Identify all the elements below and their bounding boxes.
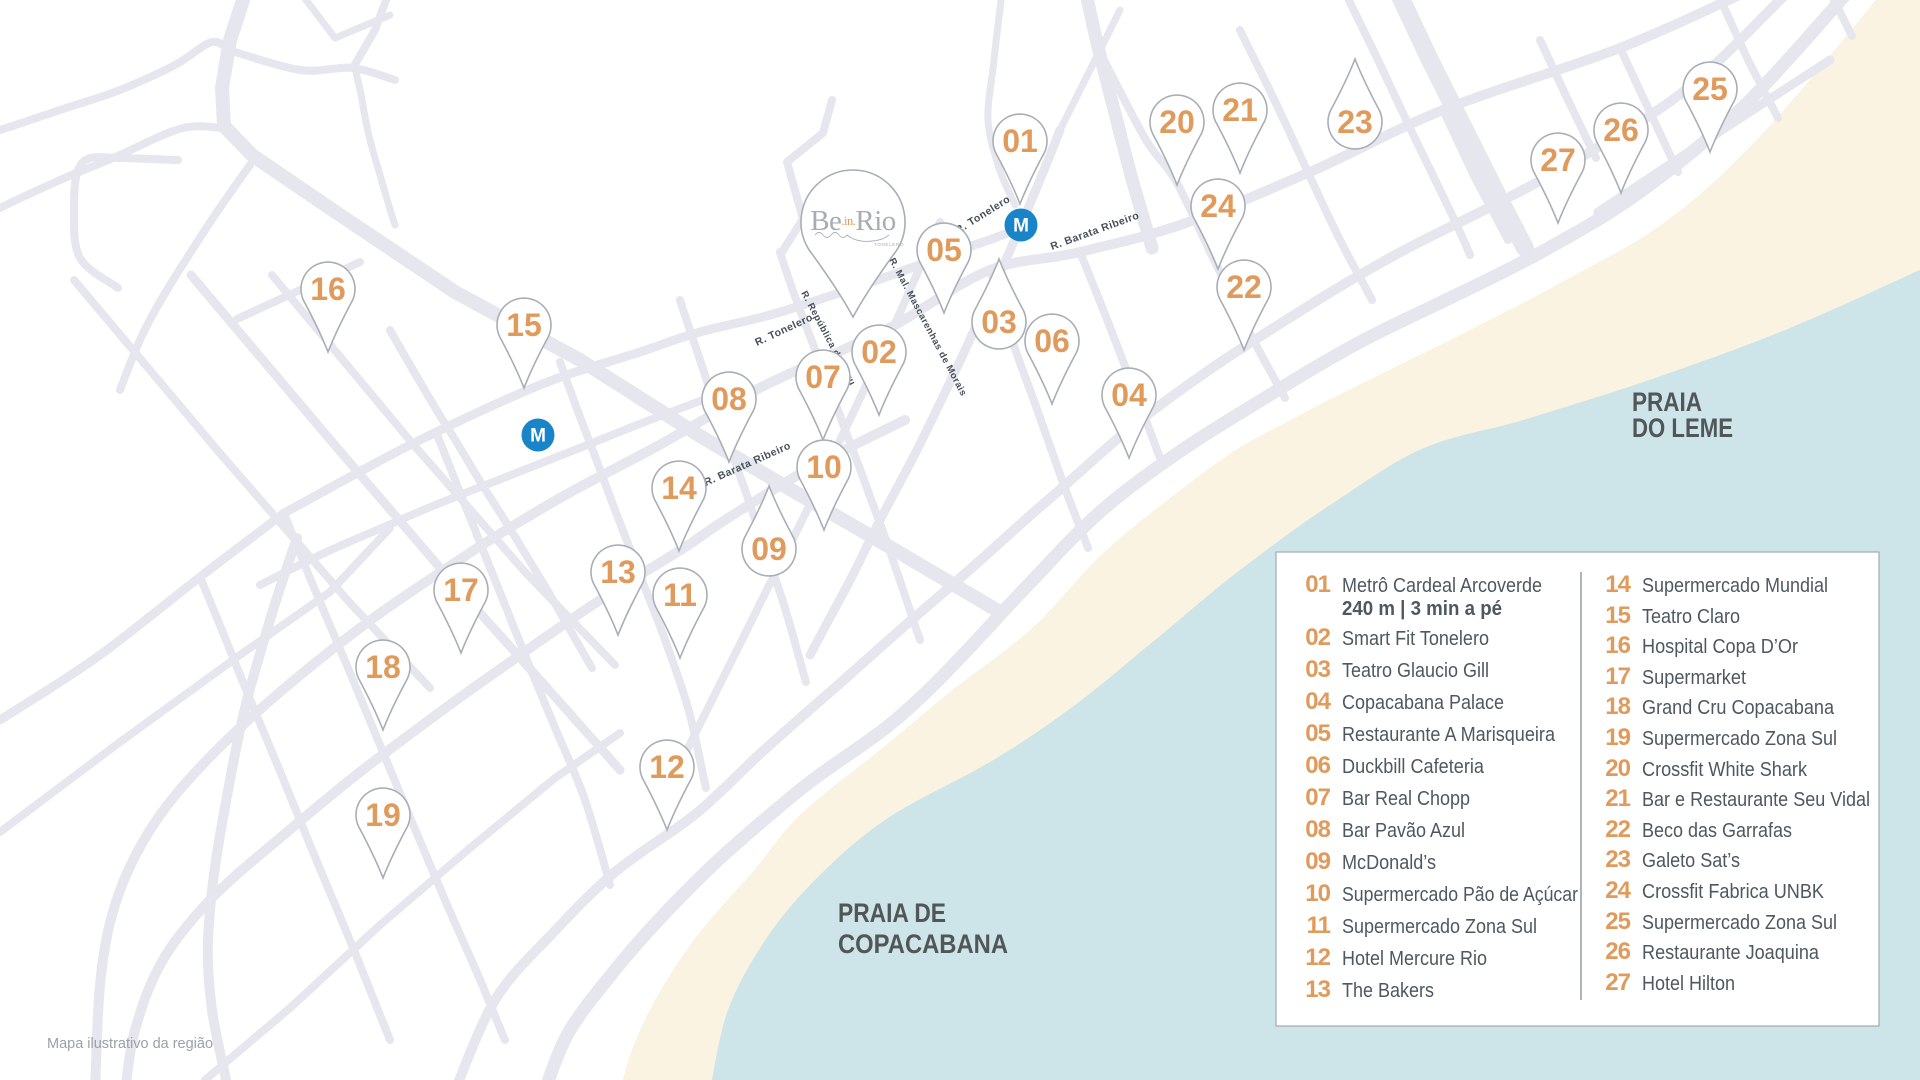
svg-text:Crossfit White Shark: Crossfit White Shark [1642, 759, 1808, 781]
svg-text:DO LEME: DO LEME [1632, 413, 1733, 443]
svg-text:06: 06 [1305, 752, 1330, 779]
svg-text:22: 22 [1605, 816, 1630, 843]
svg-text:26: 26 [1605, 938, 1630, 965]
svg-text:Mapa ilustrativo da região: Mapa ilustrativo da região [47, 1036, 213, 1052]
svg-text:08: 08 [711, 381, 747, 417]
svg-text:17: 17 [443, 572, 479, 608]
svg-text:16: 16 [1605, 632, 1630, 659]
svg-text:Beco das Garrafas: Beco das Garrafas [1642, 820, 1792, 842]
svg-text:20: 20 [1159, 104, 1195, 140]
svg-text:18: 18 [365, 649, 401, 685]
svg-text:240 m | 3 min a pé: 240 m | 3 min a pé [1342, 598, 1502, 620]
svg-text:24: 24 [1605, 877, 1631, 904]
svg-text:Grand Cru Copacabana: Grand Cru Copacabana [1642, 697, 1835, 719]
svg-text:Supermercado Zona Sul: Supermercado Zona Sul [1642, 912, 1837, 934]
svg-text:27: 27 [1540, 142, 1576, 178]
svg-text:01: 01 [1305, 571, 1330, 598]
svg-text:Bar e Restaurante Seu Vidal: Bar e Restaurante Seu Vidal [1642, 789, 1870, 811]
svg-text:09: 09 [751, 531, 787, 567]
svg-text:Hotel Mercure Rio: Hotel Mercure Rio [1342, 948, 1487, 970]
svg-text:25: 25 [1692, 71, 1728, 107]
svg-text:07: 07 [1305, 784, 1330, 811]
svg-text:22: 22 [1226, 269, 1262, 305]
svg-text:Copacabana Palace: Copacabana Palace [1342, 692, 1504, 714]
svg-text:COPACABANA: COPACABANA [838, 929, 1008, 959]
svg-text:10: 10 [1305, 880, 1330, 907]
svg-text:11: 11 [1307, 912, 1331, 939]
svg-text:M: M [1013, 216, 1029, 237]
svg-text:20: 20 [1605, 755, 1630, 782]
svg-text:05: 05 [926, 232, 962, 268]
svg-text:19: 19 [365, 797, 401, 833]
svg-text:26: 26 [1603, 112, 1639, 148]
svg-text:04: 04 [1111, 377, 1147, 413]
svg-text:23: 23 [1605, 846, 1630, 873]
svg-text:Teatro Glaucio Gill: Teatro Glaucio Gill [1342, 660, 1489, 682]
svg-text:09: 09 [1305, 848, 1330, 875]
svg-text:07: 07 [805, 359, 841, 395]
svg-text:18: 18 [1605, 693, 1630, 720]
svg-text:Supermercado Pão de Açúcar: Supermercado Pão de Açúcar [1342, 884, 1578, 906]
svg-text:Supermarket: Supermarket [1642, 667, 1746, 689]
svg-text:Metrô Cardeal Arcoverde: Metrô Cardeal Arcoverde [1342, 575, 1542, 597]
svg-text:Restaurante Joaquina: Restaurante Joaquina [1642, 942, 1820, 964]
svg-text:04: 04 [1305, 688, 1331, 715]
svg-text:16: 16 [310, 271, 346, 307]
svg-text:12: 12 [1305, 944, 1330, 971]
svg-text:19: 19 [1605, 724, 1630, 751]
svg-text:06: 06 [1034, 323, 1070, 359]
svg-text:Supermercado Mundial: Supermercado Mundial [1642, 575, 1828, 597]
svg-text:M: M [530, 426, 546, 447]
svg-text:13: 13 [600, 554, 636, 590]
svg-text:Crossfit Fabrica UNBK: Crossfit Fabrica UNBK [1642, 881, 1825, 903]
svg-text:23: 23 [1337, 104, 1373, 140]
svg-text:08: 08 [1305, 816, 1330, 843]
svg-text:12: 12 [649, 749, 685, 785]
svg-text:PRAIA DE: PRAIA DE [838, 898, 946, 928]
svg-text:27: 27 [1605, 969, 1630, 996]
svg-text:10: 10 [806, 449, 842, 485]
svg-text:14: 14 [661, 470, 697, 506]
svg-text:21: 21 [1222, 92, 1258, 128]
svg-text:02: 02 [1305, 624, 1330, 651]
svg-text:03: 03 [981, 304, 1017, 340]
svg-text:13: 13 [1305, 976, 1330, 1003]
svg-text:21: 21 [1605, 785, 1630, 812]
svg-text:17: 17 [1605, 663, 1630, 690]
svg-text:Hotel Hilton: Hotel Hilton [1642, 973, 1735, 995]
svg-text:Galeto Sat’s: Galeto Sat’s [1642, 850, 1740, 872]
svg-text:03: 03 [1305, 656, 1330, 683]
svg-text:Smart Fit Tonelero: Smart Fit Tonelero [1342, 628, 1489, 650]
svg-text:TONELERO: TONELERO [874, 242, 904, 247]
svg-text:25: 25 [1605, 908, 1630, 935]
svg-text:15: 15 [1605, 602, 1630, 629]
svg-text:02: 02 [861, 334, 897, 370]
svg-text:Bar Pavão Azul: Bar Pavão Azul [1342, 820, 1465, 842]
svg-text:Restaurante A Marisqueira: Restaurante A Marisqueira [1342, 724, 1556, 746]
svg-text:Hospital Copa D’Or: Hospital Copa D’Or [1642, 636, 1798, 658]
svg-text:Supermercado Zona Sul: Supermercado Zona Sul [1642, 728, 1837, 750]
svg-text:01: 01 [1002, 123, 1038, 159]
svg-text:15: 15 [506, 307, 542, 343]
svg-text:14: 14 [1605, 571, 1631, 598]
svg-text:11: 11 [663, 577, 697, 613]
svg-text:McDonald’s: McDonald’s [1342, 852, 1436, 874]
svg-text:Bar Real Chopp: Bar Real Chopp [1342, 788, 1470, 810]
svg-text:05: 05 [1305, 720, 1330, 747]
svg-text:Duckbill Cafeteria: Duckbill Cafeteria [1342, 756, 1485, 778]
svg-text:Teatro Claro: Teatro Claro [1642, 606, 1740, 628]
svg-text:The Bakers: The Bakers [1342, 980, 1434, 1002]
svg-text:Supermercado Zona Sul: Supermercado Zona Sul [1342, 916, 1537, 938]
svg-text:24: 24 [1200, 188, 1236, 224]
